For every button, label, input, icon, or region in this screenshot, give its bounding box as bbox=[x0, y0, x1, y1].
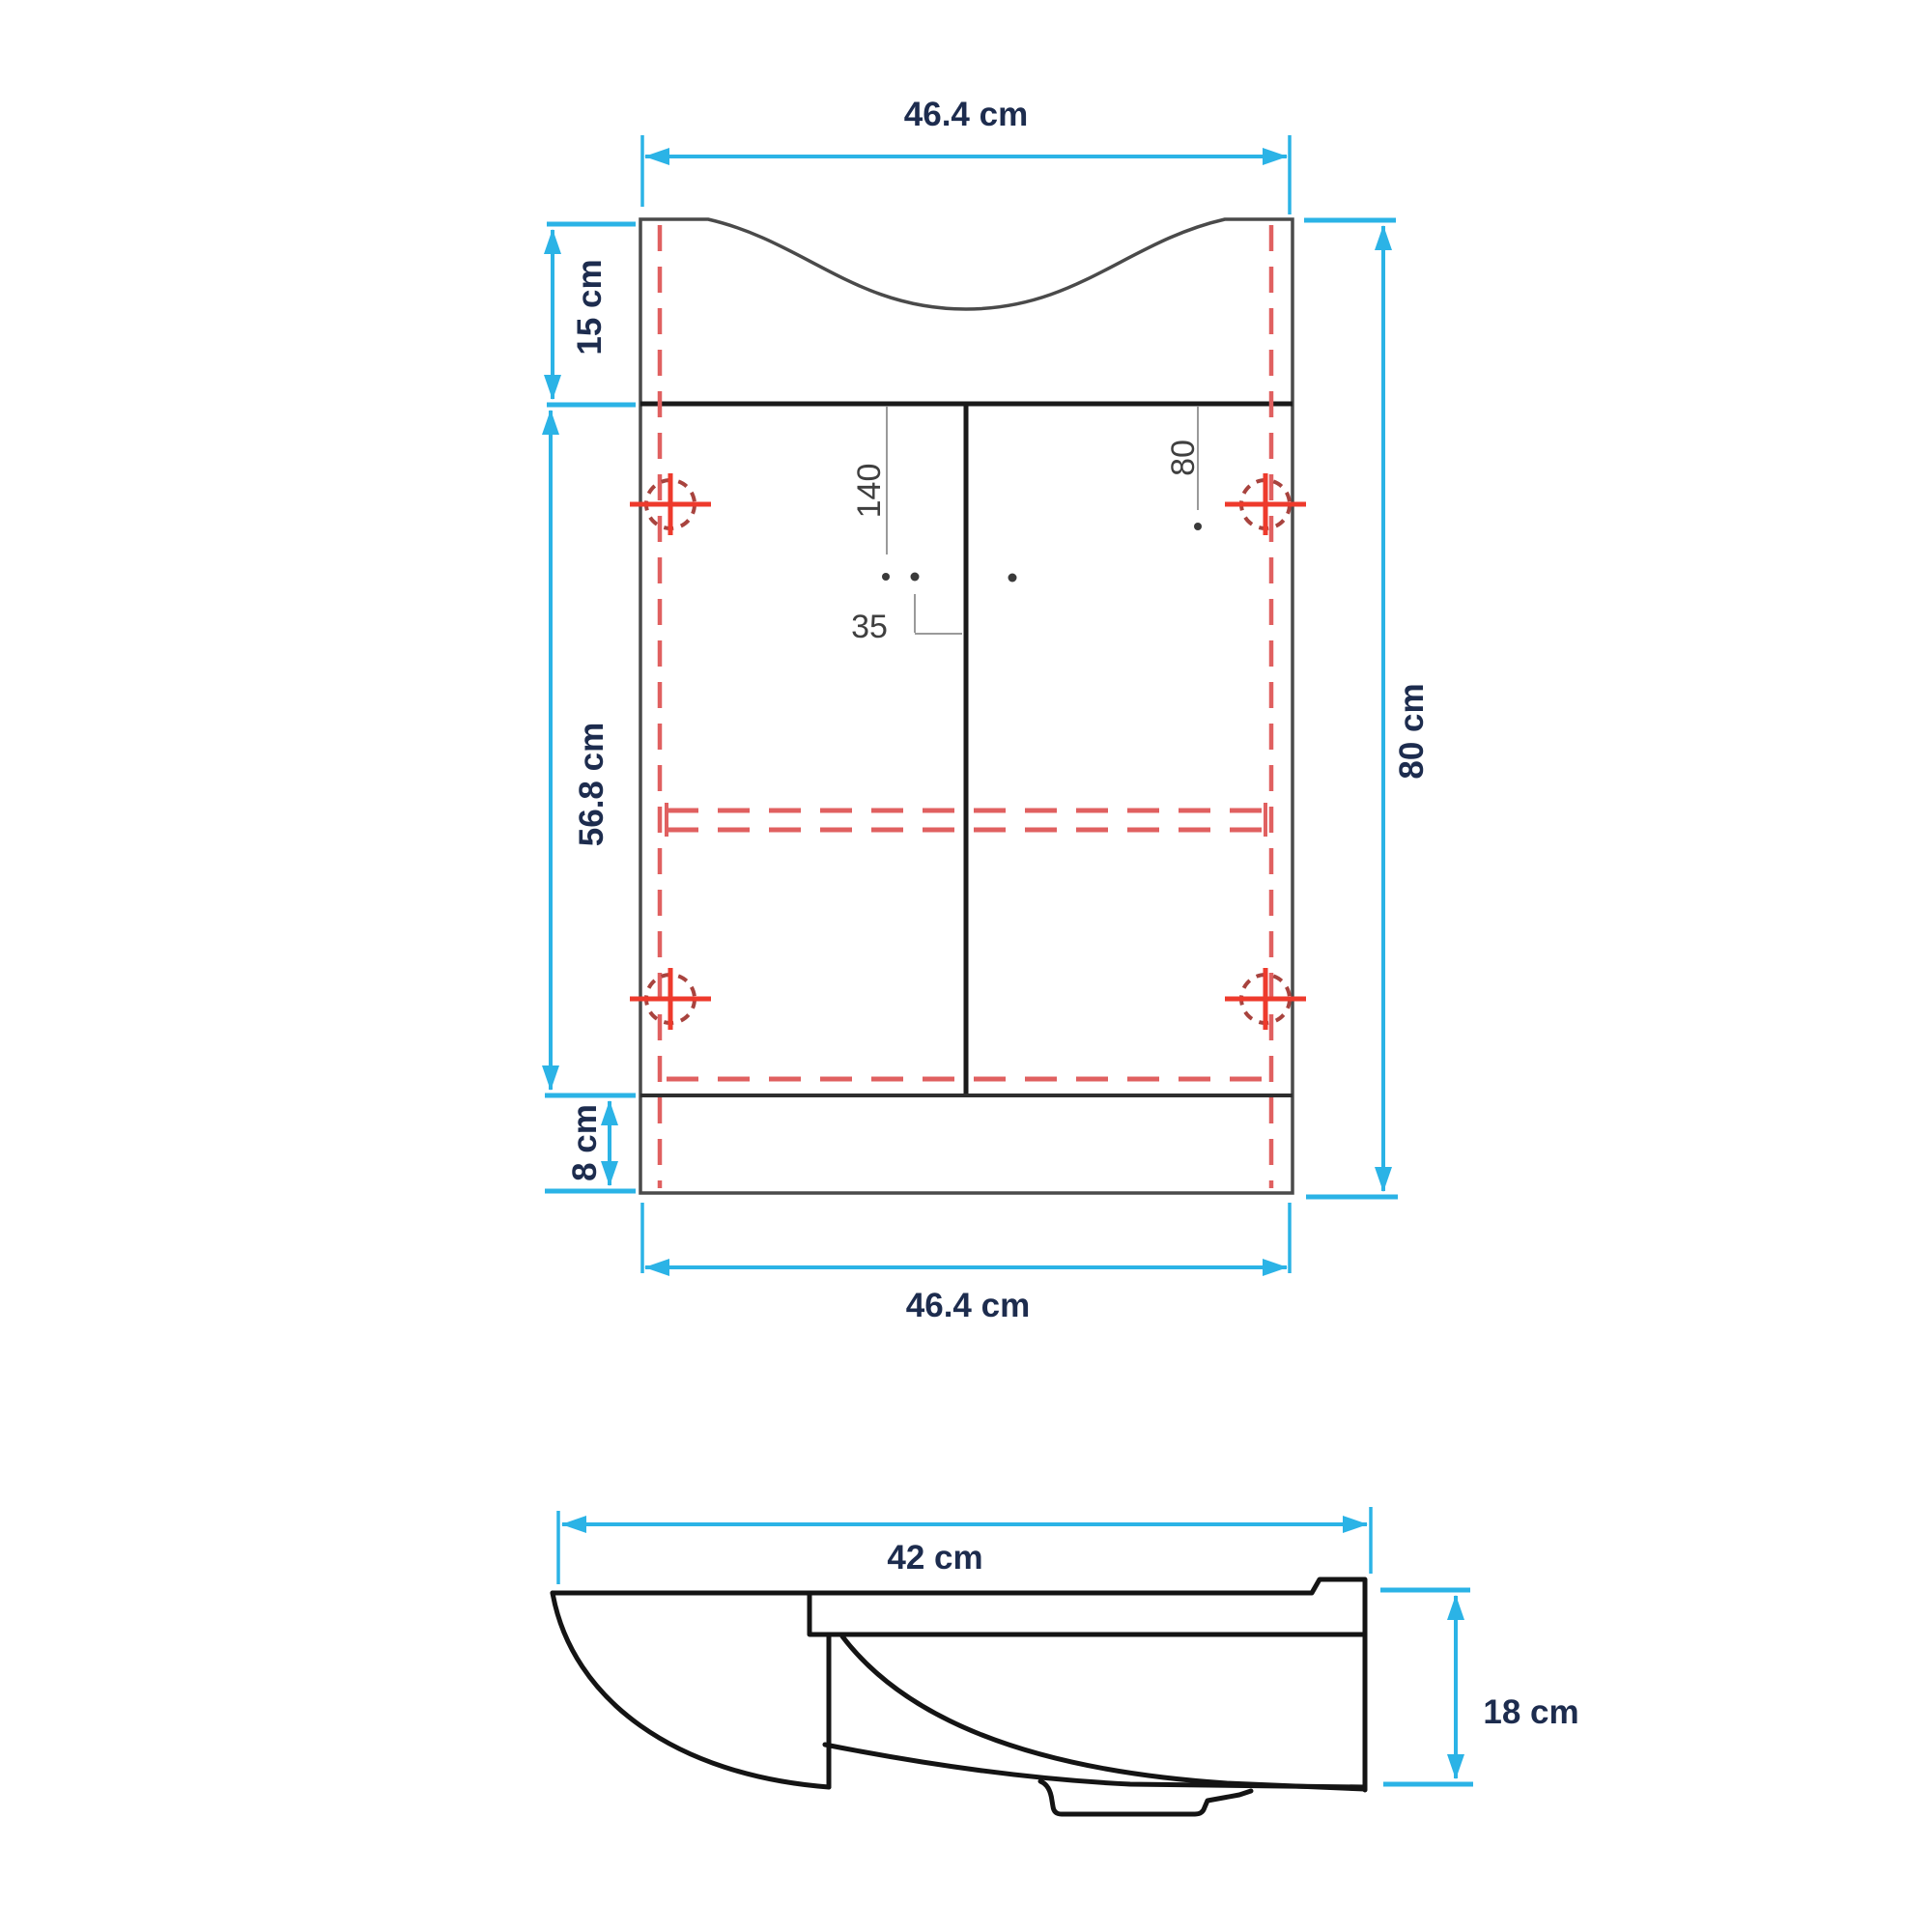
hinge-offset-label: 80 bbox=[1165, 440, 1202, 476]
drill-point bbox=[1194, 523, 1202, 530]
door-swing-arc bbox=[553, 1593, 829, 1787]
dimension-label: 46.4 cm bbox=[904, 96, 1028, 133]
dim-plinth-height: 8 cm bbox=[545, 1095, 636, 1191]
dimension-label: 46.4 cm bbox=[906, 1287, 1030, 1324]
drill-point bbox=[911, 573, 920, 582]
basin-inner-curve bbox=[842, 1636, 1365, 1789]
dim-total-height: 80 cm bbox=[1304, 220, 1431, 1197]
side-profile: 42 cm 18 cm bbox=[553, 1507, 1579, 1814]
vanity-unit-technical-drawing: 140 35 80 46.4 cm 15 cm 56.8 cm bbox=[0, 0, 1932, 1932]
dimension-label: 80 cm bbox=[1393, 683, 1431, 779]
handle-drop-label: 140 bbox=[851, 464, 888, 519]
worktop-top-edge bbox=[553, 1579, 1365, 1790]
dim-basin-height: 15 cm bbox=[547, 224, 636, 399]
dim-bottom-width: 46.4 cm bbox=[642, 1203, 1290, 1324]
dimension-label: 15 cm bbox=[571, 259, 609, 355]
worktop-band bbox=[810, 1593, 1365, 1634]
drill-point bbox=[882, 573, 890, 581]
dim-basin-front-height: 18 cm bbox=[1380, 1590, 1579, 1784]
handle-spacing-label: 35 bbox=[851, 609, 888, 645]
drilling-dimensions: 140 35 80 bbox=[851, 407, 1202, 645]
dimension-label: 8 cm bbox=[566, 1104, 604, 1181]
front-elevation: 140 35 80 46.4 cm 15 cm 56.8 cm bbox=[545, 96, 1431, 1324]
dim-top-width: 46.4 cm bbox=[642, 96, 1290, 214]
dimension-label: 42 cm bbox=[887, 1539, 982, 1577]
drill-point bbox=[1009, 574, 1017, 582]
dim-carcass-height: 56.8 cm bbox=[547, 405, 636, 1090]
dimension-label: 56.8 cm bbox=[573, 723, 611, 846]
dim-depth: 42 cm bbox=[558, 1507, 1371, 1584]
dimension-label: 18 cm bbox=[1483, 1693, 1578, 1731]
